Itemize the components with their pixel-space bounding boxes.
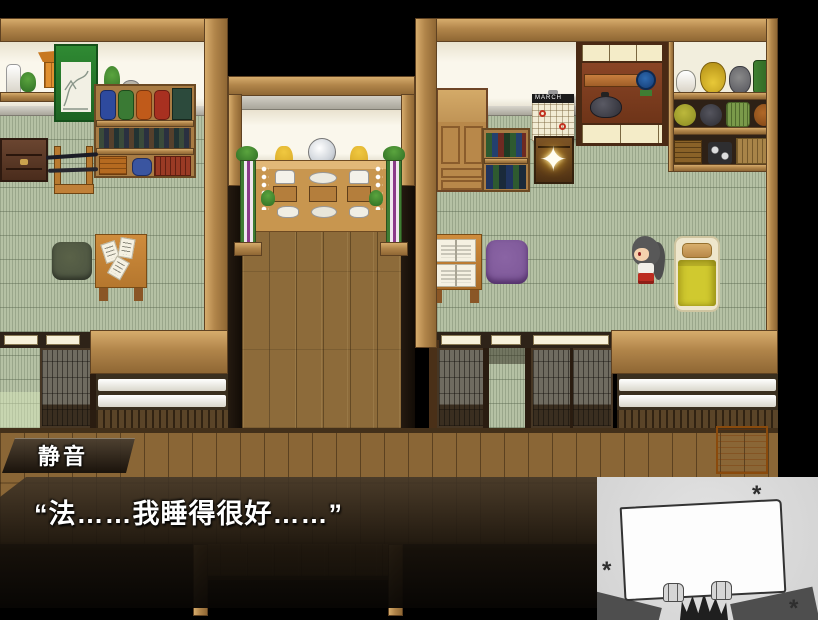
storage-box [99, 156, 127, 175]
altar-cups [277, 206, 299, 218]
pot-dark [700, 104, 722, 126]
left-door-lintel [0, 332, 92, 348]
scroll-green [118, 90, 134, 120]
altar-drawer [273, 186, 297, 202]
character-hakama [638, 273, 654, 284]
door-shadow [487, 348, 527, 364]
sparkle-event-box[interactable]: ✦ [534, 136, 574, 184]
corridor-beam [242, 94, 401, 110]
left-wall-slats [96, 410, 228, 428]
cushion-green [52, 242, 92, 280]
shelf-vase [6, 64, 21, 94]
left-room-frame-bottom [90, 330, 228, 374]
asterisk-decoration: * [602, 559, 611, 583]
door-light [0, 392, 40, 428]
writing-table[interactable] [95, 234, 147, 302]
bed-pillow [682, 243, 712, 258]
right-room-frame-bottom [611, 330, 778, 374]
altar-jars [275, 170, 295, 184]
game-viewport: MARCH ✦ [0, 0, 818, 620]
dialogue-text: “法……我睡得很好……” [34, 499, 343, 529]
left-room-frame-top [0, 18, 228, 42]
bed-blanket [678, 260, 716, 306]
banner-stand-left [234, 146, 262, 262]
hanging-scroll-painting [54, 44, 98, 122]
asterisk-decoration: * [752, 483, 761, 507]
scroll-orange [136, 90, 152, 120]
pot-shelf [668, 40, 778, 172]
altar-drawer [309, 186, 337, 202]
shoji-door-right-room[interactable] [437, 348, 485, 428]
alcove-bottom-panels [582, 125, 662, 143]
gourd-yellow [700, 62, 726, 94]
figure-hand-left [663, 583, 684, 602]
scroll-red [154, 90, 170, 120]
altar-drawer [347, 186, 371, 202]
cushion-purple [486, 240, 528, 284]
basket-red [154, 156, 191, 176]
bookshelf-small [482, 128, 530, 192]
right-door-lintel [437, 332, 617, 348]
study-desk[interactable] [430, 234, 482, 304]
crate [674, 140, 702, 164]
door-divider [570, 348, 573, 428]
void-top [0, 0, 818, 18]
katana-stand [46, 142, 100, 194]
calendar-marked-date [559, 123, 566, 130]
shrine-altar[interactable] [253, 136, 391, 232]
calendar-month: MARCH [532, 94, 574, 103]
altar-bottles [349, 170, 369, 184]
calendar-marked-date [539, 110, 546, 117]
wooden-chest [0, 138, 48, 182]
orange-mat[interactable] [716, 426, 768, 474]
wardrobe [436, 88, 488, 192]
left-exterior-wall [96, 374, 228, 410]
plate-stand [640, 90, 652, 96]
alcove-top-panels [582, 45, 662, 61]
scroll-stack [708, 142, 732, 164]
alcove-step [584, 74, 640, 87]
jar-gray [729, 66, 751, 94]
character-eye [638, 252, 641, 256]
corridor-header-beam [228, 76, 415, 96]
altar-plant-left [261, 190, 275, 206]
teapot-lid [601, 92, 609, 97]
book-row [99, 128, 191, 148]
bed[interactable] [674, 236, 720, 312]
bookshelf [94, 84, 196, 178]
figure-hand-right [711, 581, 732, 600]
speaker-name-box: 静音 [2, 438, 135, 473]
right-exterior-wall [617, 374, 778, 410]
iron-teapot [590, 96, 622, 118]
wall-calendar[interactable]: MARCH [532, 94, 574, 141]
gourd-white [676, 70, 696, 94]
open-book [436, 264, 476, 287]
basket-green [726, 102, 750, 127]
left-room-frame-right [204, 18, 228, 375]
sparkle-icon: ✦ [539, 143, 568, 177]
altar-vase [349, 206, 369, 218]
shoji-door-left-room[interactable] [40, 348, 92, 428]
scroll-blue [100, 90, 116, 120]
character-face [634, 248, 649, 261]
door-post [483, 348, 489, 428]
right-room-frame-right [766, 18, 778, 375]
shelf-plant [20, 72, 36, 92]
open-book [436, 239, 476, 262]
right-room-frame-left [415, 18, 437, 348]
overlay-sign-picture: * * * [597, 477, 818, 620]
basket-tan [736, 138, 770, 164]
altar-bowl [311, 206, 337, 218]
banner-stand-right [380, 146, 408, 262]
book-row [486, 133, 526, 157]
book-dark [172, 88, 192, 120]
blank-sign [620, 499, 787, 601]
speaker-name: 静音 [38, 444, 88, 469]
right-room-frame-top [415, 18, 778, 42]
display-plate [636, 70, 656, 90]
player-character[interactable] [628, 230, 668, 286]
tokonoma-alcove [576, 40, 668, 146]
asterisk-decoration: * [789, 597, 798, 620]
book-row [486, 165, 526, 189]
pot-yellowgreen [674, 104, 696, 126]
scroll-pair [132, 158, 152, 176]
altar-plate [309, 172, 337, 184]
